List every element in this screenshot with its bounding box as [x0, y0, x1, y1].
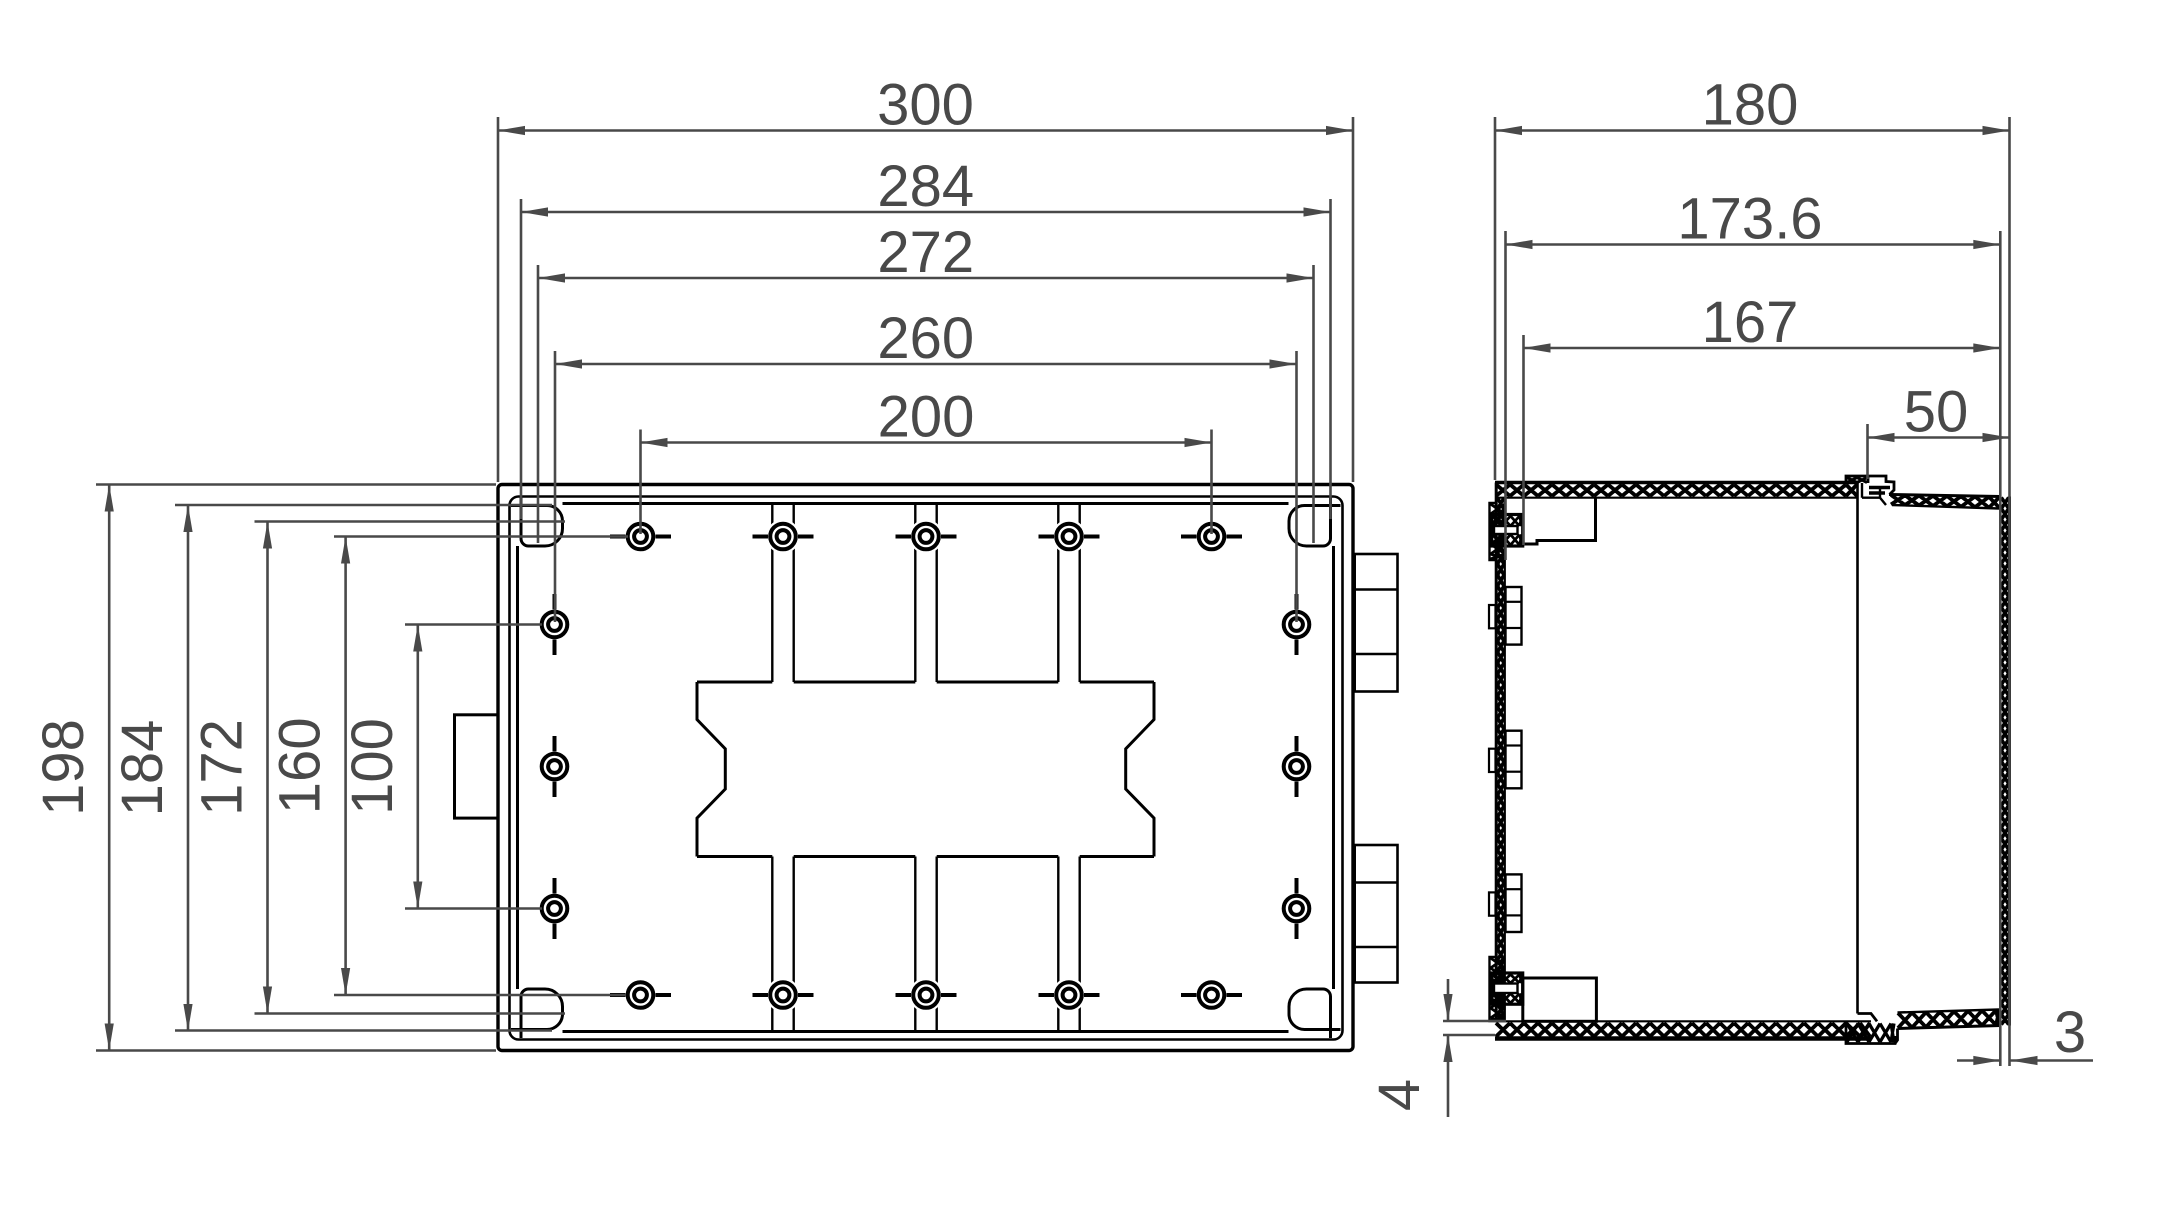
svg-text:184: 184 [110, 720, 175, 817]
svg-text:160: 160 [268, 717, 333, 814]
svg-text:200: 200 [878, 385, 975, 450]
svg-text:180: 180 [1702, 73, 1799, 138]
svg-text:4: 4 [1367, 1079, 1432, 1111]
svg-text:50: 50 [1904, 380, 1969, 445]
svg-text:172: 172 [190, 719, 255, 816]
svg-text:284: 284 [877, 154, 974, 219]
svg-text:173.6: 173.6 [1677, 187, 1822, 252]
svg-text:100: 100 [340, 718, 405, 815]
svg-text:300: 300 [877, 73, 974, 138]
svg-text:260: 260 [877, 306, 974, 371]
svg-text:3: 3 [2054, 1000, 2086, 1065]
svg-text:272: 272 [877, 220, 974, 285]
svg-text:167: 167 [1702, 290, 1799, 355]
svg-text:198: 198 [31, 719, 96, 816]
